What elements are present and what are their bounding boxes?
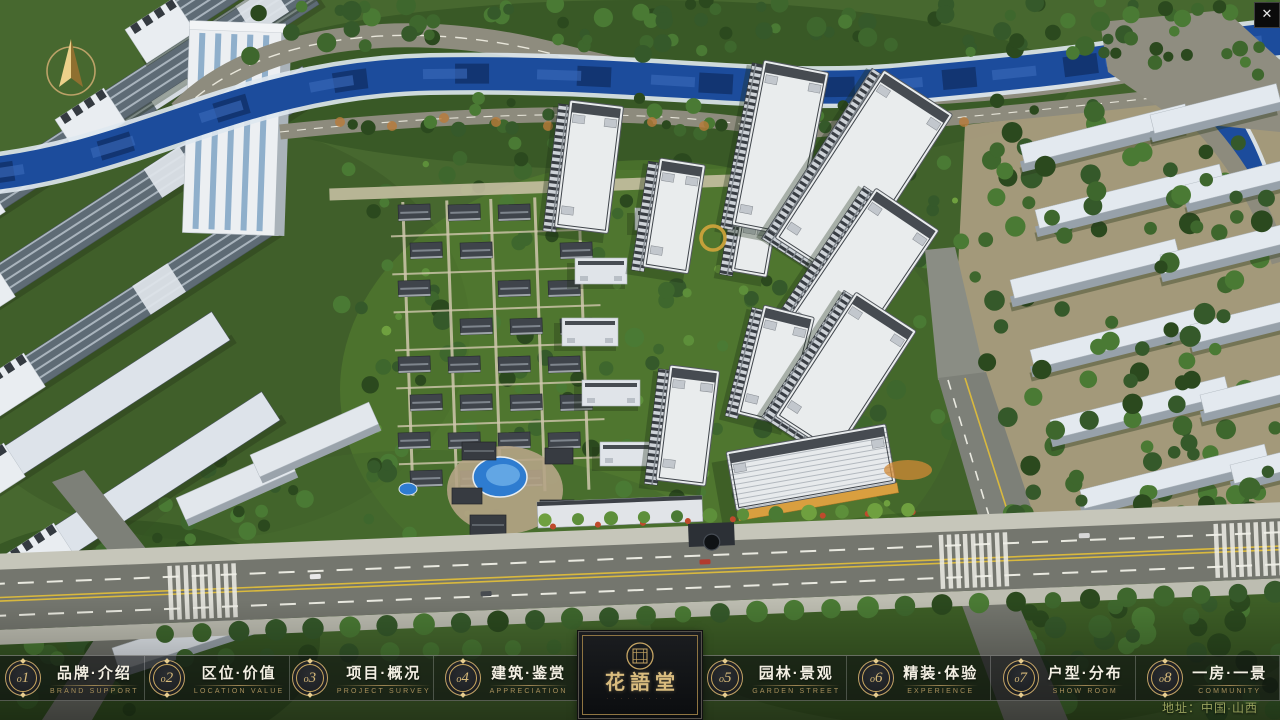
nav-item-01[interactable]: o1品牌·介绍BRAND SUPPORT [0,656,145,700]
nav-item-03[interactable]: o3项目·概况PROJECT SURVEY [290,656,435,700]
seal-emblem-icon [625,641,655,671]
presentation-screen: ✕ o1品牌·介绍BRAND SUPPORTo2区位·价值LOCATION VA… [0,0,1280,720]
logo-plaque-frame: 花語堂 · · · · · · · · · · [582,635,698,715]
nav-item-badge: o3 [292,660,328,696]
project-address: 地址：中国·山西 [1162,699,1258,716]
nav-item-badge: o7 [1003,660,1039,696]
nav-item-label-en: APPRECIATION [490,688,568,695]
nav-item-label-en: EXPERIENCE [907,688,974,695]
nav-item-label-en: COMMUNITY [1198,688,1261,695]
nav-item-badge: o6 [858,660,894,696]
bottom-nav-bar: o1品牌·介绍BRAND SUPPORTo2区位·价值LOCATION VALU… [0,655,1280,701]
nav-item-label-zh: 精装·体验 [903,662,978,683]
nav-item-labels: 项目·概况PROJECT SURVEY [337,662,431,695]
nav-item-labels: 精装·体验EXPERIENCE [903,662,978,695]
nav-item-07[interactable]: o7户型·分布SHOW ROOM [991,656,1136,700]
nav-item-label-zh: 品牌·介绍 [57,662,132,683]
nav-item-badge: o1 [5,660,41,696]
nav-item-02[interactable]: o2区位·价值LOCATION VALUE [145,656,290,700]
nav-item-08[interactable]: o8一房·一景COMMUNITY [1136,656,1280,700]
logo-tagline: · · · · · · · · · · [606,696,673,702]
nav-item-label-en: PROJECT SURVEY [337,688,431,695]
nav-item-labels: 园林·景观GARDEN STREET [752,662,840,695]
nav-item-label-en: LOCATION VALUE [194,688,284,695]
nav-item-06[interactable]: o6精装·体验EXPERIENCE [847,656,992,700]
nav-item-badge: o4 [445,660,481,696]
close-button[interactable]: ✕ [1254,2,1280,28]
nav-item-label-en: SHOW ROOM [1053,688,1118,695]
nav-item-label-zh: 户型·分布 [1048,662,1123,683]
nav-item-badge: o8 [1147,660,1183,696]
nav-item-label-zh: 建筑·鉴赏 [491,662,566,683]
nav-item-label-zh: 区位·价值 [202,662,277,683]
nav-item-badge: o5 [707,660,743,696]
flower-bed [884,460,932,480]
logo-title: 花語堂 [600,672,680,694]
logo-plaque[interactable]: 花語堂 · · · · · · · · · · [578,631,702,719]
nav-item-labels: 区位·价值LOCATION VALUE [194,662,284,695]
nav-item-badge: o2 [149,660,185,696]
nav-item-labels: 一房·一景COMMUNITY [1192,662,1267,695]
nav-item-label-zh: 一房·一景 [1192,662,1267,683]
nav-right-group: o5园林·景观GARDEN STREETo6精装·体验EXPERIENCEo7户… [702,656,1280,700]
nav-item-labels: 户型·分布SHOW ROOM [1048,662,1123,695]
nav-left-group: o1品牌·介绍BRAND SUPPORTo2区位·价值LOCATION VALU… [0,656,578,700]
nav-item-label-en: BRAND SUPPORT [50,688,139,695]
nav-item-labels: 建筑·鉴赏APPRECIATION [490,662,568,695]
close-icon: ✕ [1262,7,1273,22]
nav-item-labels: 品牌·介绍BRAND SUPPORT [50,662,139,695]
nav-item-label-en: GARDEN STREET [752,688,840,695]
nav-item-04[interactable]: o4建筑·鉴赏APPRECIATION [434,656,578,700]
nav-item-label-zh: 园林·景观 [759,662,834,683]
nav-item-05[interactable]: o5园林·景观GARDEN STREET [702,656,847,700]
nav-item-label-zh: 项目·概况 [346,662,421,683]
master-plan-render [0,0,1280,720]
